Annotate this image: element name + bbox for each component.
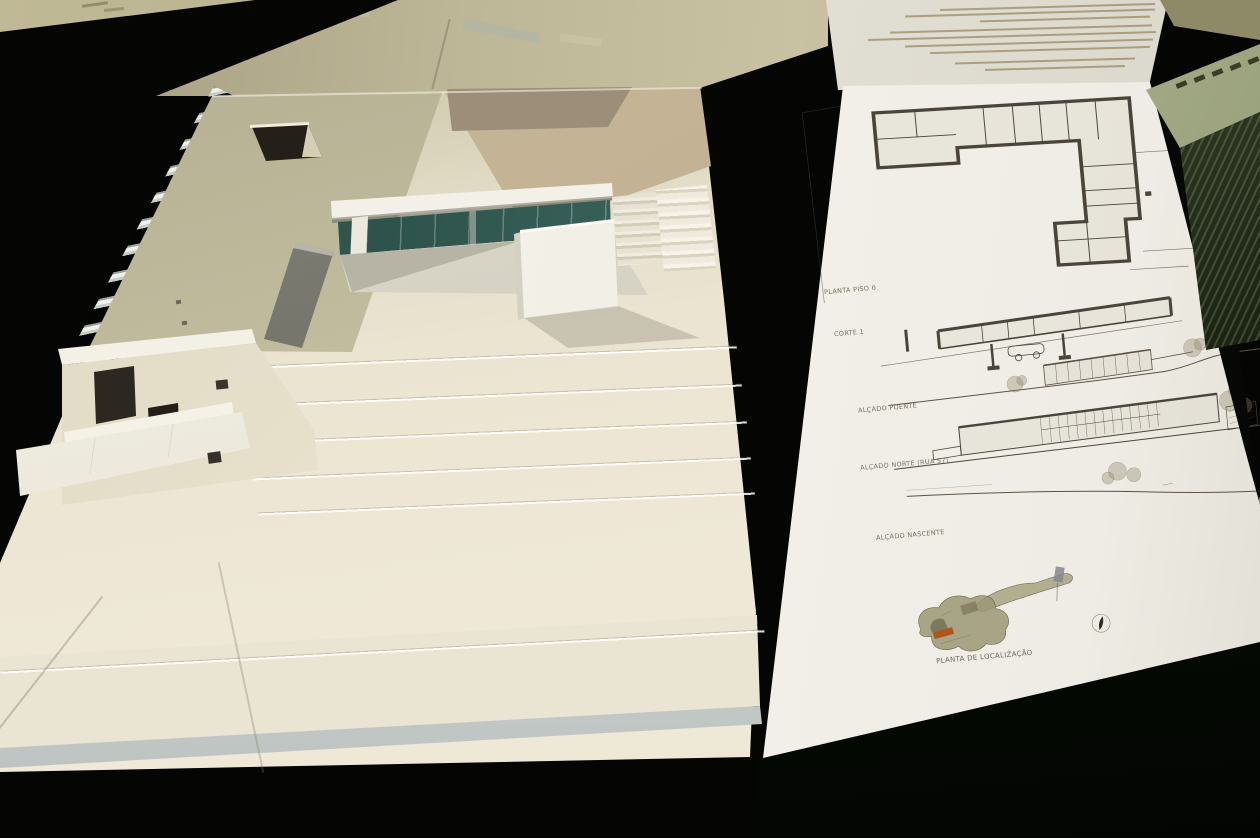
- stack-footprint-mark: [1211, 68, 1223, 77]
- stack-footprint-mark: [1193, 74, 1205, 83]
- stack-footprint-mark: [1175, 80, 1187, 89]
- ruler-mark: [462, 19, 540, 44]
- front-window: [207, 451, 221, 464]
- roof-vent-dot: [176, 300, 182, 305]
- faint-drawing-mark: [560, 33, 603, 46]
- site-plan-drawing: [915, 562, 1112, 656]
- patio-window: [216, 379, 229, 389]
- faint-drawing-mark: [340, 9, 370, 17]
- north-arrow-icon: [1091, 613, 1111, 633]
- courtyard-mullion-post: [470, 211, 476, 247]
- pencil-mark: [104, 7, 124, 12]
- sheet-seam: [431, 19, 450, 89]
- stack-footprint-mark: [1229, 62, 1241, 71]
- pencil-mark: [82, 1, 108, 8]
- description-text-line: [980, 16, 1150, 23]
- roof-vent-dot: [182, 321, 188, 326]
- photo-scene: PLANTA PISO 0 CORTE 1 ALÇADO POENTE ALÇA…: [0, 0, 1260, 838]
- stack-footprint-mark: [1247, 56, 1259, 65]
- elevation-east-drawing: [905, 445, 1260, 525]
